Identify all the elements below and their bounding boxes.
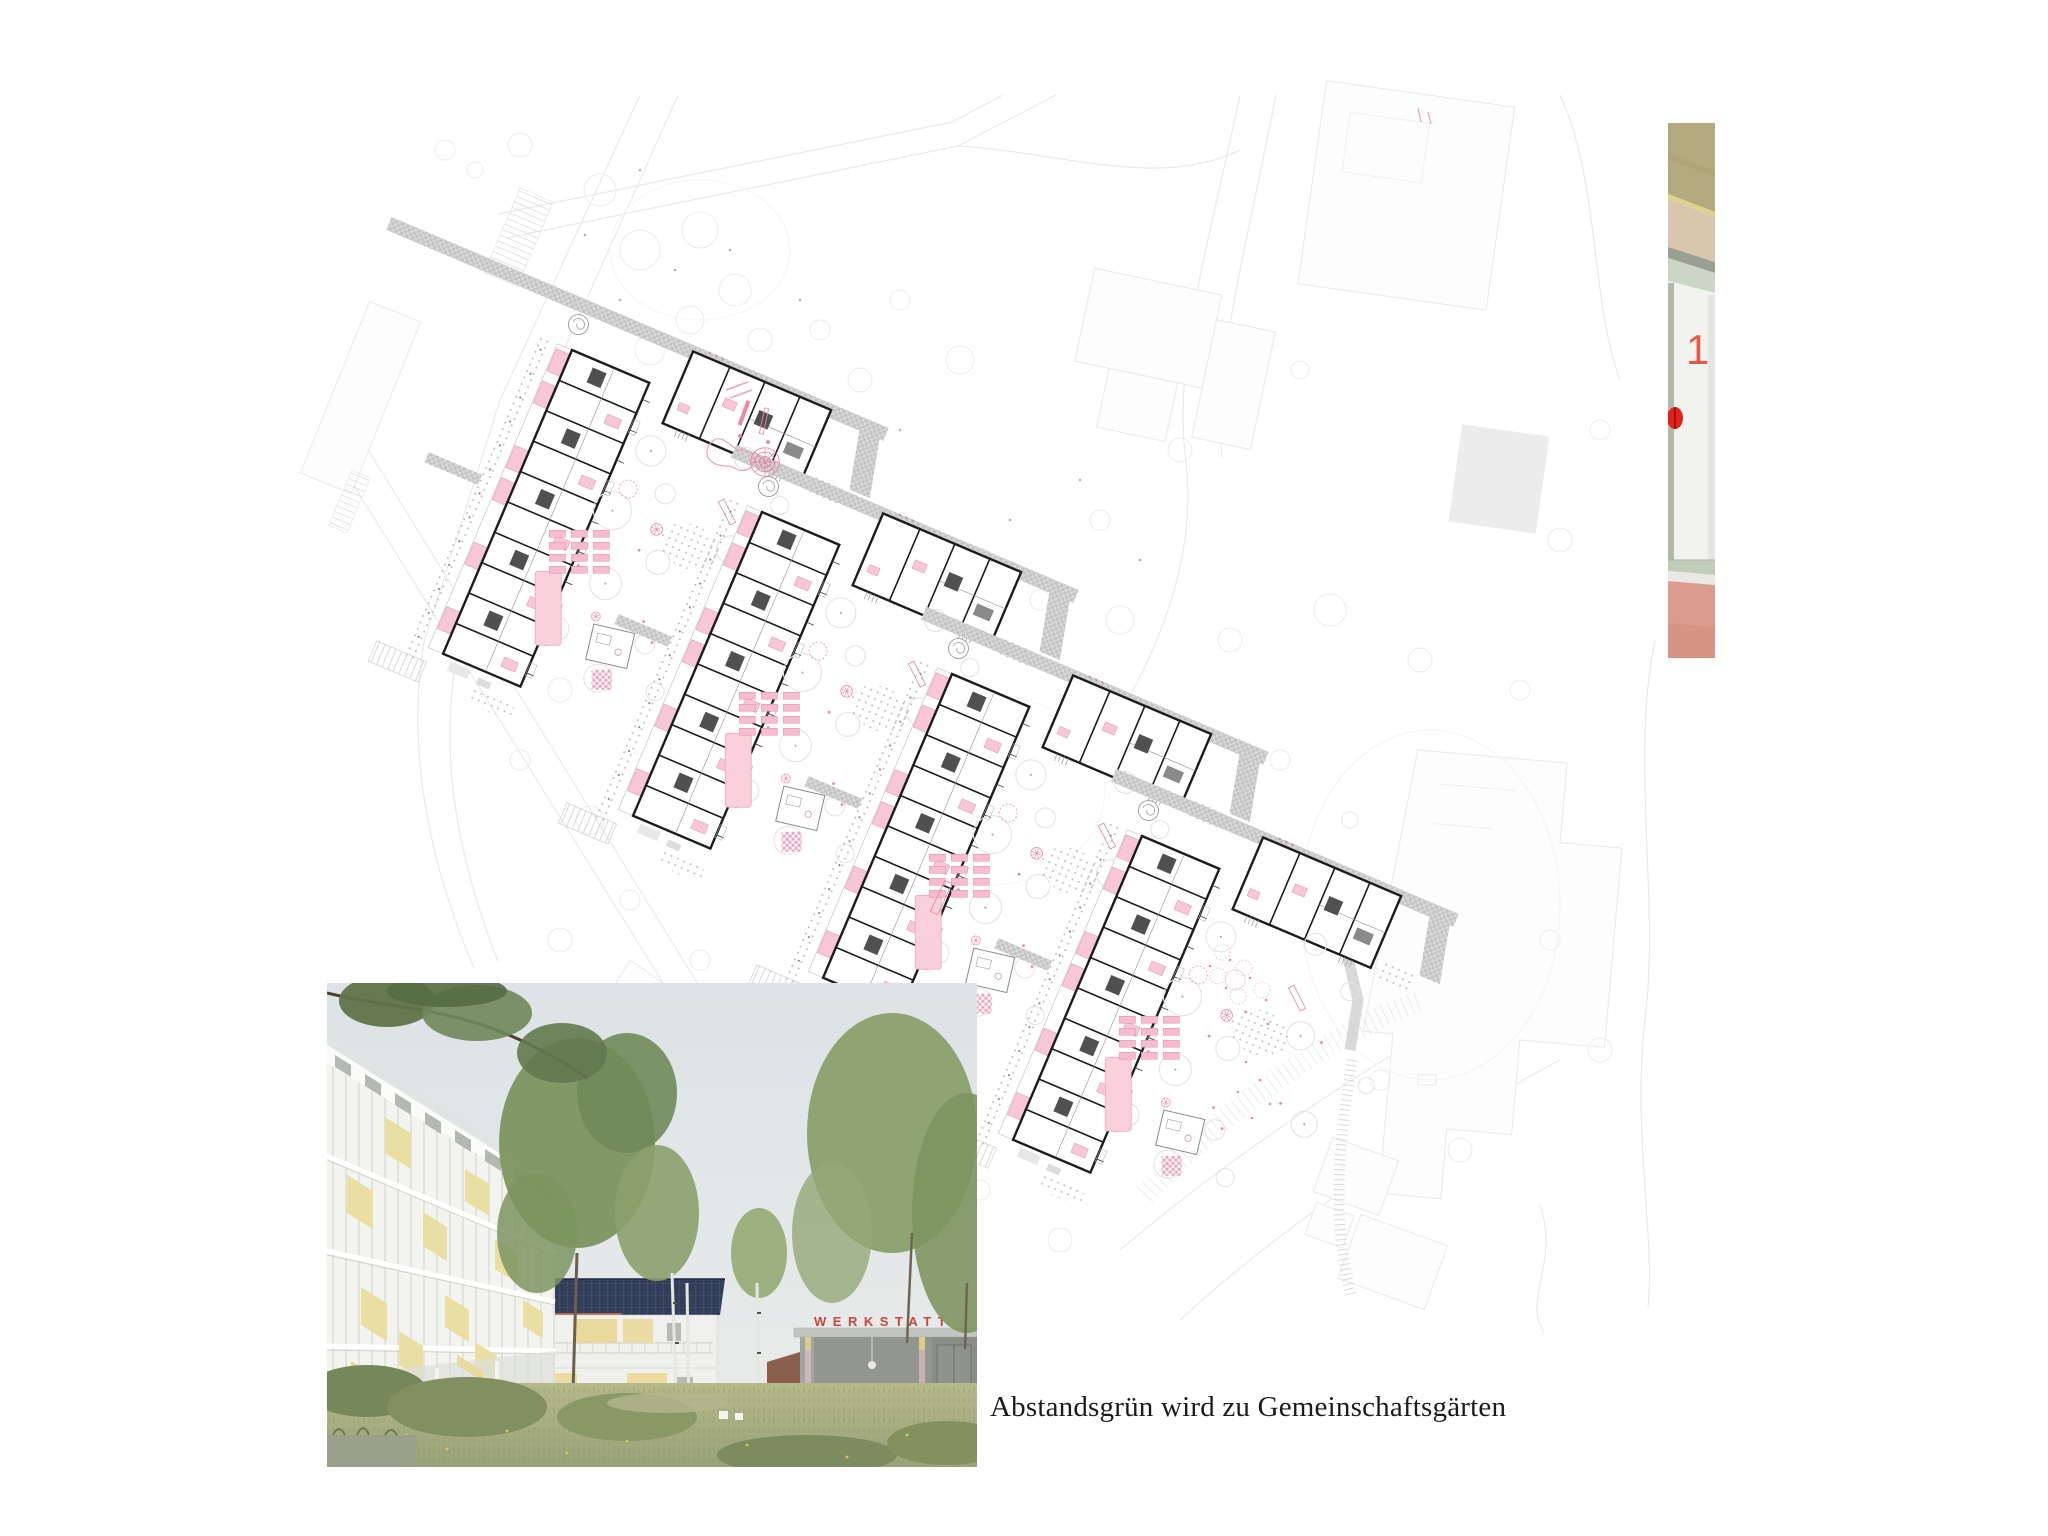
door-detail-photo: 1: [1668, 123, 1715, 658]
courtyard-rendering: WERKSTATT: [327, 983, 977, 1467]
werkstatt-sign: WERKSTATT: [814, 1314, 952, 1329]
presentation-page: WERKSTATT: [0, 0, 2048, 1536]
door-number: 1: [1686, 326, 1709, 373]
caption: Abstandsgrün wird zu Gemeinschaftsgärten: [990, 1391, 1550, 1424]
site-plan: [0, 0, 2048, 1536]
